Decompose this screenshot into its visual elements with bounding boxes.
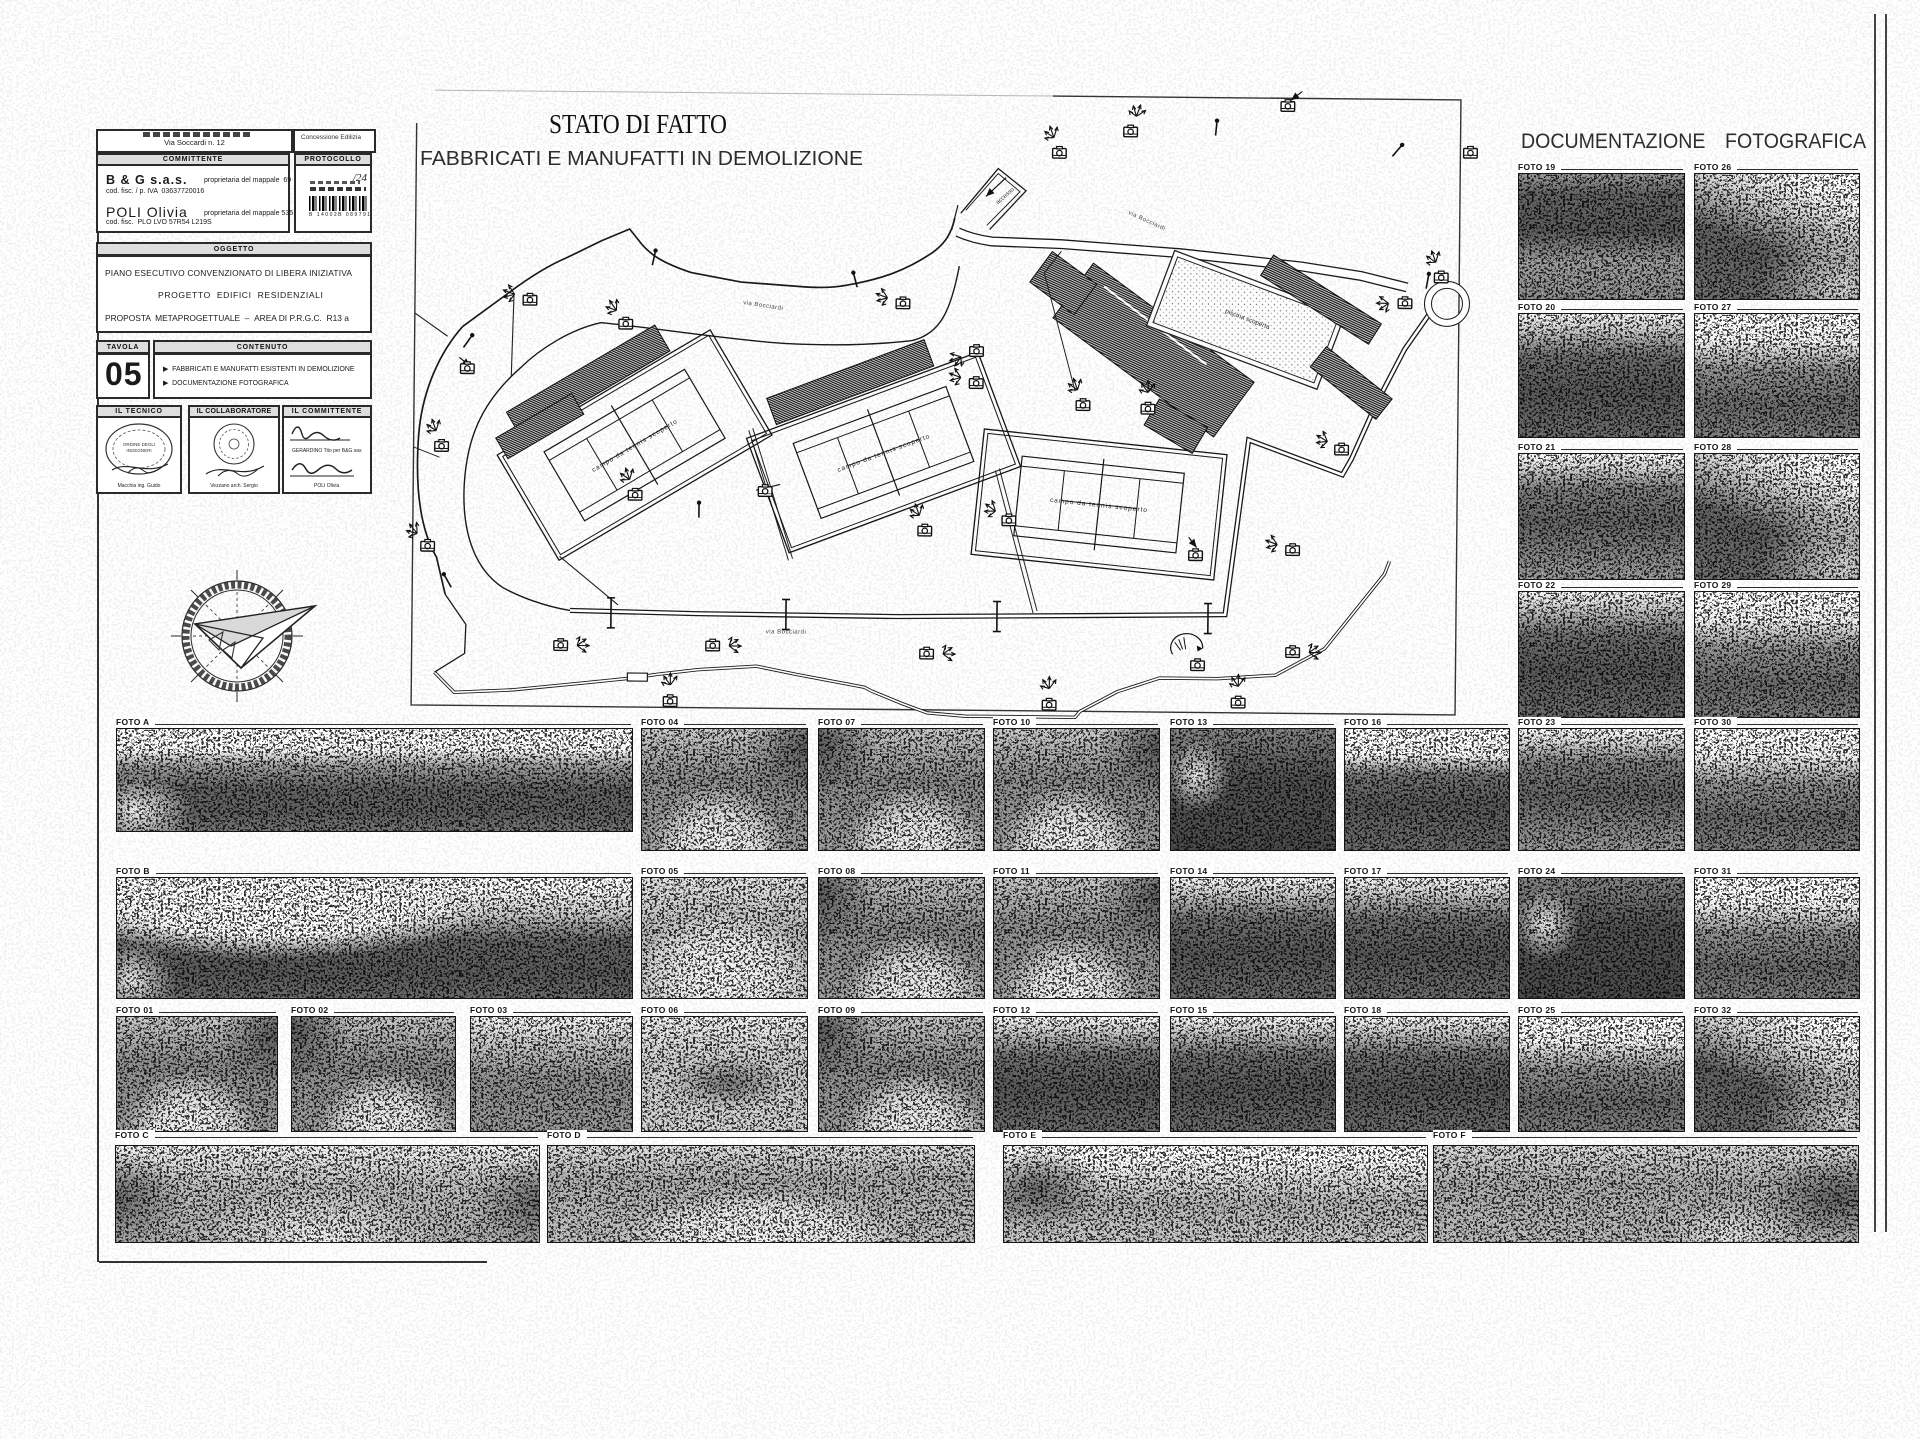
- svg-text:via Bocciardi: via Bocciardi: [1127, 210, 1166, 232]
- svg-text:DOCUMENTAZIONE FOTOGRAFICA: DOCUMENTAZIONE FOTOGRAFICA: [1521, 129, 1867, 153]
- svg-text:INGEGNERI: INGEGNERI: [126, 448, 151, 453]
- svg-text:via Bocciardi: via Bocciardi: [743, 300, 784, 312]
- svg-text:POLI Olivia: POLI Olivia: [314, 483, 340, 489]
- svg-text:ORDINE DEGLI: ORDINE DEGLI: [123, 442, 155, 447]
- svg-text:Vezzano arch. Sergio: Vezzano arch. Sergio: [210, 483, 258, 489]
- svg-text:Macchia ing. Guido: Macchia ing. Guido: [118, 483, 161, 489]
- svg-text:campo da tennis scoperto: campo da tennis scoperto: [591, 418, 679, 474]
- svg-text:GERARDINO Tito per B&G sas: GERARDINO Tito per B&G sas: [292, 448, 362, 454]
- svg-text:accesso: accesso: [995, 187, 1016, 207]
- svg-text:campo da tennis scoperto: campo da tennis scoperto: [837, 433, 932, 474]
- svg-text:campo da tennis scoperto: campo da tennis scoperto: [1050, 497, 1149, 514]
